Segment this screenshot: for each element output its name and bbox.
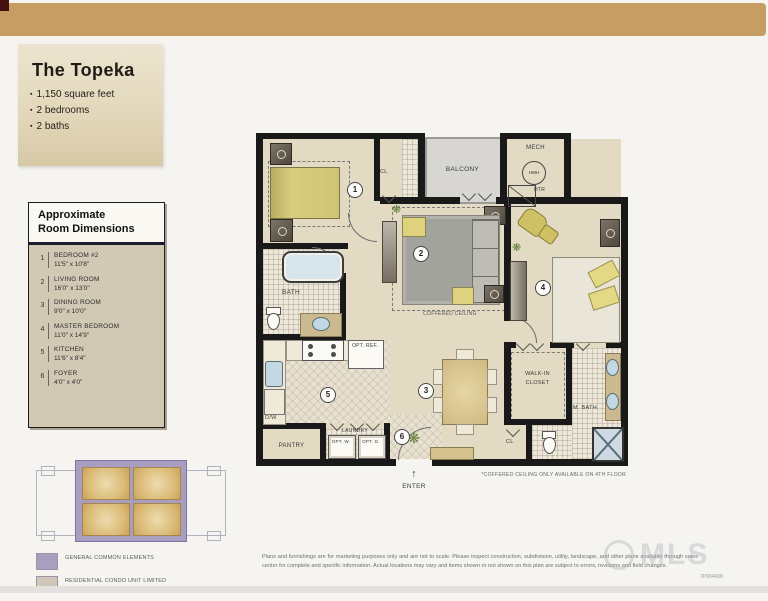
dishwasher-icon bbox=[264, 389, 285, 415]
room-name: MASTER BEDROOM bbox=[54, 323, 119, 330]
document-code: 7P904668 bbox=[700, 574, 723, 580]
room-name: LIVING ROOM bbox=[54, 276, 100, 283]
closet-label: CL bbox=[380, 169, 388, 175]
dining-chair bbox=[487, 369, 497, 385]
room-size: 11'5" x 10'8" bbox=[54, 261, 99, 268]
room-name: KITCHEN bbox=[54, 346, 86, 353]
page-title: The Topeka bbox=[32, 60, 163, 81]
balcony-label: BALCONY bbox=[425, 166, 500, 173]
key-plan-unit bbox=[82, 503, 130, 536]
linen-closet-floor bbox=[402, 139, 418, 197]
key-plan-unit bbox=[133, 467, 181, 500]
dresser-icon bbox=[510, 261, 527, 321]
dining-chair bbox=[487, 397, 497, 413]
shower-icon bbox=[592, 427, 624, 462]
room-marker-5: 5 bbox=[320, 387, 336, 403]
dimension-item: 1 BEDROOM #211'5" x 10'8" bbox=[37, 252, 158, 268]
dimension-item: 2 LIVING ROOM16'0" x 13'0" bbox=[37, 276, 158, 292]
room-marker-4: 4 bbox=[535, 280, 551, 296]
nightstand bbox=[270, 219, 293, 242]
bullet-text: 2 bedrooms bbox=[36, 105, 89, 116]
dimension-item: 3 DINING ROOM9'0" x 10'0" bbox=[37, 299, 158, 315]
master-bath-label: M. BATH bbox=[568, 405, 602, 411]
dining-chair bbox=[433, 397, 443, 413]
opt-washer-label: OPT. W. bbox=[328, 439, 354, 444]
title-block: The Topeka ▪1,150 square feet ▪2 bedroom… bbox=[18, 44, 163, 166]
key-plan-unit bbox=[133, 503, 181, 536]
plant-icon: ❋ bbox=[512, 243, 521, 254]
mech-label: MECH bbox=[507, 145, 564, 151]
mls-watermark: MLS bbox=[604, 538, 764, 572]
room-marker-6: 6 bbox=[394, 429, 410, 445]
mls-logo-icon bbox=[604, 540, 634, 570]
opt-dryer-label: OPT. D. bbox=[358, 439, 384, 444]
end-table bbox=[484, 285, 504, 303]
bathtub-icon bbox=[282, 251, 344, 283]
dining-chair bbox=[456, 349, 474, 360]
room-size: 9'0" x 10'0" bbox=[54, 308, 101, 315]
walk-in-shelving-outline bbox=[511, 352, 565, 422]
dimension-item: 6 FOYER4'0" x 4'0" bbox=[37, 370, 158, 386]
room-size: 11'6" x 8'4" bbox=[54, 355, 86, 362]
dimensions-heading-line2: Room Dimensions bbox=[38, 223, 164, 237]
room-size: 11'0" x 14'9" bbox=[54, 332, 119, 339]
legend-swatch-common bbox=[36, 553, 58, 570]
title-bullet-list: ▪1,150 square feet ▪2 bedrooms ▪2 baths bbox=[30, 89, 163, 132]
sideboard-icon bbox=[430, 447, 474, 460]
room-size: 16'0" x 13'0" bbox=[54, 285, 100, 292]
room-name: FOYER bbox=[54, 370, 82, 377]
bullet-square-icon: ▪ bbox=[30, 91, 32, 98]
walk-in-label-1: WALK-IN bbox=[511, 371, 564, 377]
bath-label: BATH bbox=[282, 289, 300, 296]
building-key-plan bbox=[20, 452, 240, 552]
room-dimensions-panel: Approximate Room Dimensions 1 BEDROOM #2… bbox=[28, 202, 165, 428]
room-number: 2 bbox=[37, 276, 48, 292]
title-bullet: ▪1,150 square feet bbox=[30, 89, 163, 100]
armchair-icon bbox=[452, 287, 474, 305]
bottom-edge bbox=[0, 586, 768, 593]
closet-label: CL bbox=[506, 439, 514, 445]
dining-chair bbox=[456, 424, 474, 435]
dimensions-heading-line1: Approximate bbox=[38, 209, 164, 223]
room-size: 4'0" x 4'0" bbox=[54, 379, 82, 386]
key-plan-legend: GENERAL COMMON ELEMENTS RESIDENTIAL COND… bbox=[36, 553, 206, 601]
plan-footnote: *COFFERED CEILING ONLY AVAILABLE ON 4TH … bbox=[446, 472, 626, 478]
room-number: 3 bbox=[37, 299, 48, 315]
laundry-label: LAUNDRY bbox=[326, 428, 384, 434]
legend-row: GENERAL COMMON ELEMENTS bbox=[36, 553, 206, 570]
enter-label: ENTER bbox=[390, 483, 438, 490]
legend-label: GENERAL COMMON ELEMENTS bbox=[65, 553, 154, 570]
walk-in-label-2: CLOSET bbox=[511, 380, 564, 386]
room-marker-2: 2 bbox=[413, 246, 429, 262]
title-bullet: ▪2 baths bbox=[30, 121, 163, 132]
room-number: 6 bbox=[37, 370, 48, 386]
room-number: 4 bbox=[37, 323, 48, 339]
armchair-icon bbox=[402, 217, 426, 237]
room-number: 5 bbox=[37, 346, 48, 362]
sink-icon bbox=[606, 393, 619, 410]
opt-ref-label: OPT. REF. bbox=[350, 343, 380, 349]
plant-icon: ❋ bbox=[392, 205, 401, 216]
room-number: 1 bbox=[37, 252, 48, 268]
dimension-item: 4 MASTER BEDROOM11'0" x 14'9" bbox=[37, 323, 158, 339]
title-bullet: ▪2 bedrooms bbox=[30, 105, 163, 116]
heater-icon bbox=[508, 185, 536, 207]
bed2-icon bbox=[270, 167, 340, 219]
dw-label: D/W bbox=[265, 415, 277, 421]
pantry-label: PANTRY bbox=[263, 443, 320, 449]
bullet-text: 1,150 square feet bbox=[36, 89, 114, 100]
sink-icon bbox=[312, 317, 330, 331]
bullet-square-icon: ▪ bbox=[30, 123, 32, 130]
bullet-square-icon: ▪ bbox=[30, 107, 32, 114]
nightstand bbox=[600, 219, 620, 247]
coffered-ceiling-label: COFFERED CEILING bbox=[392, 311, 508, 317]
top-banner-bar bbox=[0, 3, 766, 36]
floorplan-sheet: { "page": { "top_bar_color": "#c69e63", … bbox=[0, 0, 768, 593]
sink-icon bbox=[606, 359, 619, 376]
tv-console bbox=[382, 221, 397, 283]
nightstand bbox=[270, 143, 292, 165]
stove-icon bbox=[302, 340, 344, 361]
dimension-item: 5 KITCHEN11'6" x 8'4" bbox=[37, 346, 158, 362]
bullet-text: 2 baths bbox=[36, 121, 69, 132]
htr-label: HTR bbox=[534, 187, 545, 193]
mls-watermark-text: MLS bbox=[640, 538, 709, 572]
enter-arrow-icon: ↑ bbox=[400, 468, 428, 480]
water-heater-icon: HWH bbox=[522, 161, 546, 185]
dimensions-heading: Approximate Room Dimensions bbox=[29, 203, 164, 245]
room-marker-1: 1 bbox=[347, 182, 363, 198]
key-plan-common-area bbox=[75, 460, 187, 542]
room-marker-3: 3 bbox=[418, 383, 434, 399]
corner-mark bbox=[0, 0, 9, 11]
room-name: DINING ROOM bbox=[54, 299, 101, 306]
legend-label-line1: RESIDENTIAL CONDO UNIT LIMITED bbox=[65, 577, 166, 586]
floor-plan: ❋ ❋ ❋ HWH BALCONY MECH HTR CL bbox=[256, 131, 628, 503]
dining-chair bbox=[433, 369, 443, 385]
kitchen-sink-icon bbox=[265, 361, 283, 387]
dining-table-icon bbox=[442, 359, 488, 425]
key-plan-unit bbox=[82, 467, 130, 500]
room-name: BEDROOM #2 bbox=[54, 252, 99, 259]
